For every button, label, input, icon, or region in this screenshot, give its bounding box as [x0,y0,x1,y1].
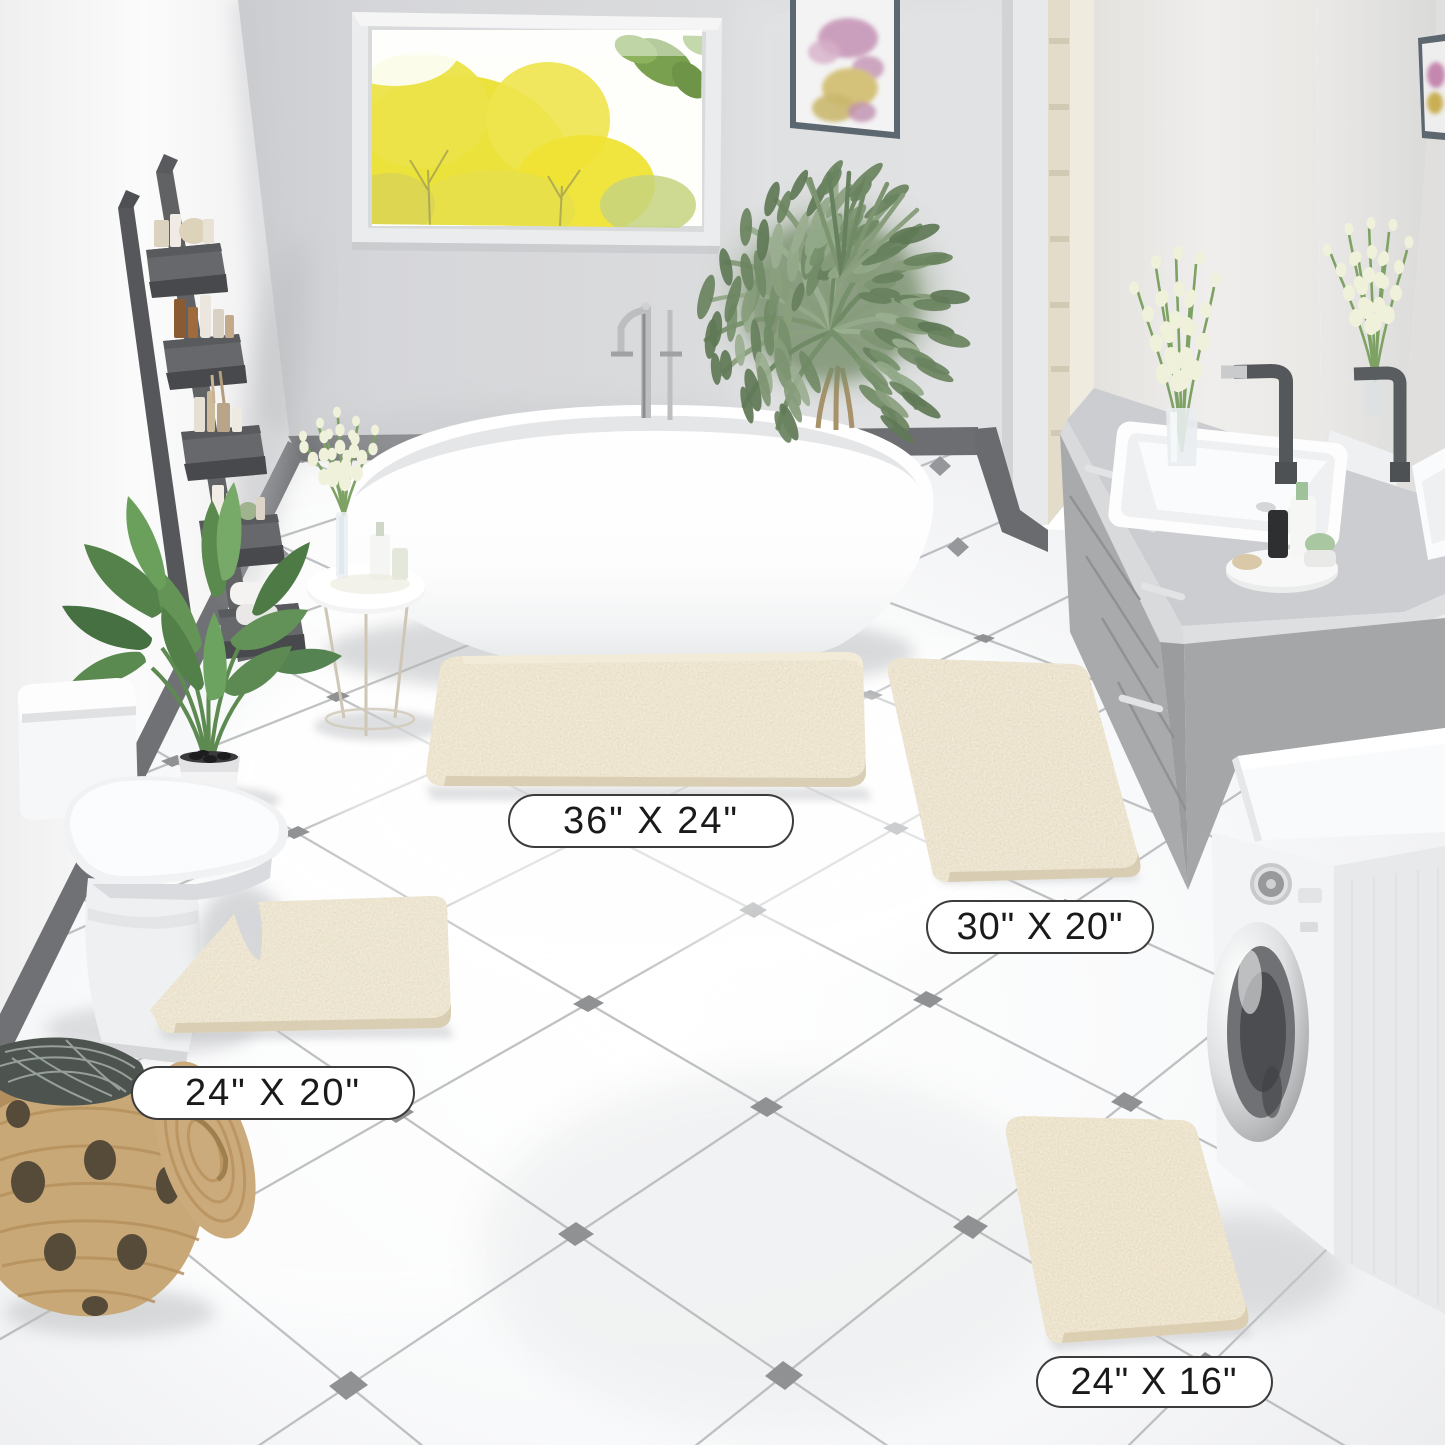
svg-text:30" X 20": 30" X 20" [957,906,1124,948]
svg-text:36" X 24": 36" X 24" [563,800,739,842]
svg-text:24" X 20": 24" X 20" [185,1072,361,1114]
svg-text:24" X 16": 24" X 16" [1071,1361,1238,1403]
